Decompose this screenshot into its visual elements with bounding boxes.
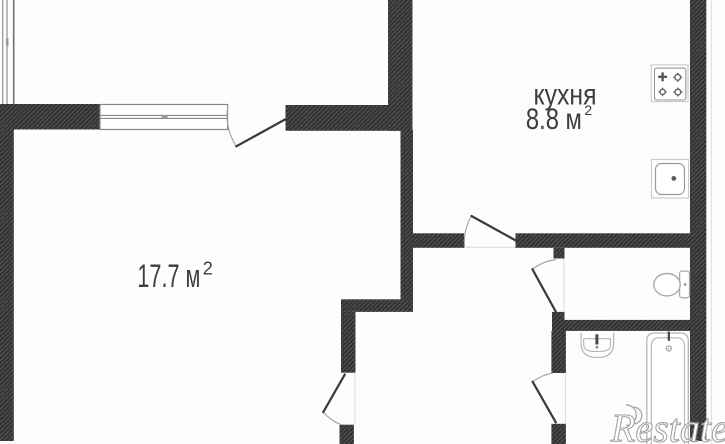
- svg-text:17.7 м: 17.7 м: [137, 258, 200, 294]
- svg-text:Restate: Restate: [610, 406, 725, 444]
- svg-text:8.8 м: 8.8 м: [526, 103, 582, 136]
- svg-text:2: 2: [584, 102, 592, 118]
- svg-text:2: 2: [203, 258, 213, 278]
